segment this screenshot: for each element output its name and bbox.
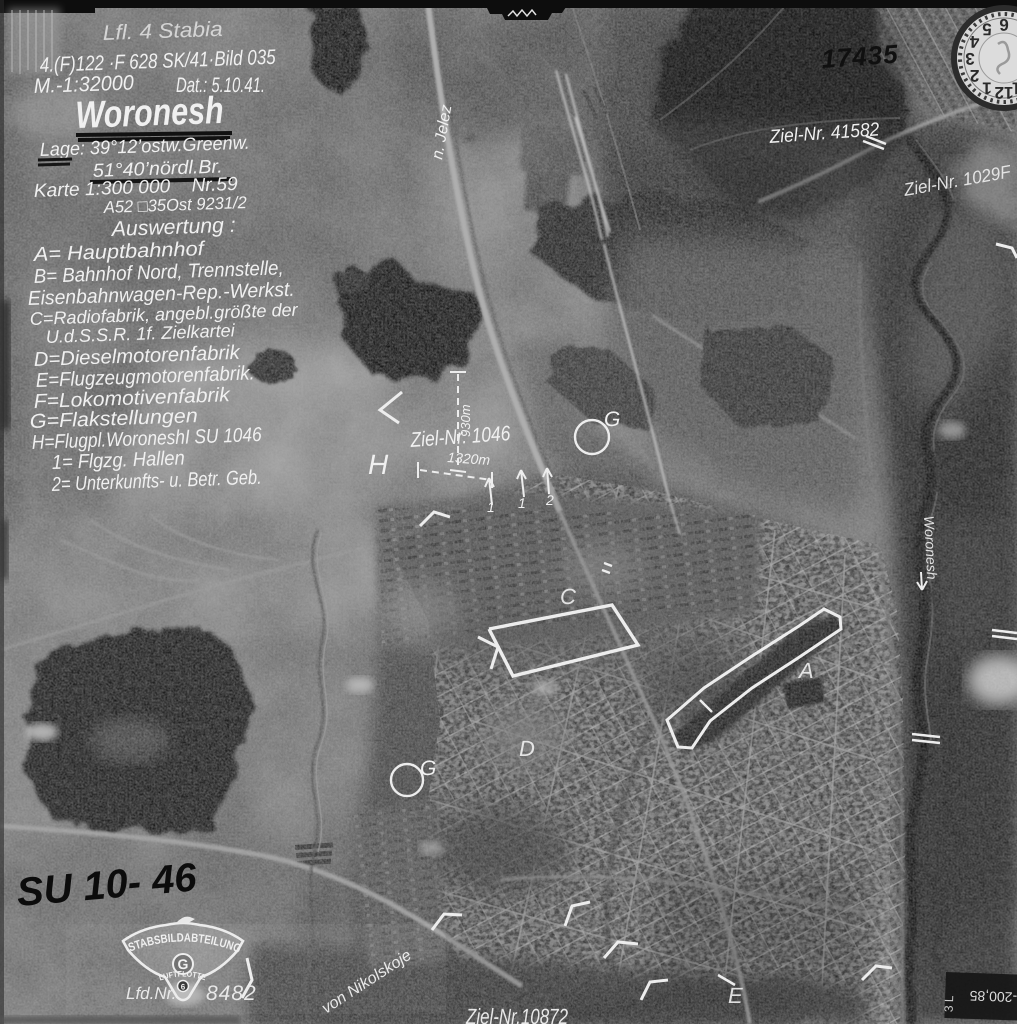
svg-text:930m: 930m xyxy=(458,404,473,437)
svg-text:8482: 8482 xyxy=(206,982,257,1005)
svg-text:2: 2 xyxy=(545,492,554,508)
svg-text:6: 6 xyxy=(999,15,1008,34)
svg-text:4: 4 xyxy=(969,32,979,51)
svg-text:17435: 17435 xyxy=(820,39,899,74)
svg-text:6: 6 xyxy=(181,983,186,992)
svg-text:H: H xyxy=(368,449,389,480)
svg-text:Auswertung :: Auswertung : xyxy=(109,214,236,241)
svg-text:Lfd.Nr.: Lfd.Nr. xyxy=(126,984,176,1003)
svg-text:D: D xyxy=(519,736,535,761)
svg-text:1: 1 xyxy=(518,495,526,511)
svg-text:Woronesh: Woronesh xyxy=(75,90,224,137)
svg-text:Woronesh: Woronesh xyxy=(921,515,940,580)
svg-text:C: C xyxy=(560,584,576,609)
svg-text:A: A xyxy=(797,658,814,683)
svg-text:1320m: 1320m xyxy=(447,449,491,468)
svg-text:1: 1 xyxy=(982,78,991,97)
svg-text:Lfl. 4 Stabia: Lfl. 4 Stabia xyxy=(102,18,223,45)
svg-text:3 L: 3 L xyxy=(942,995,957,1012)
svg-text:-200,85: -200,85 xyxy=(969,988,1017,1006)
svg-text:E: E xyxy=(728,983,743,1008)
svg-text:5: 5 xyxy=(982,20,991,39)
svg-text:12: 12 xyxy=(995,83,1014,102)
svg-text:Ziel-Nr.10872: Ziel-Nr.10872 xyxy=(465,1004,568,1024)
